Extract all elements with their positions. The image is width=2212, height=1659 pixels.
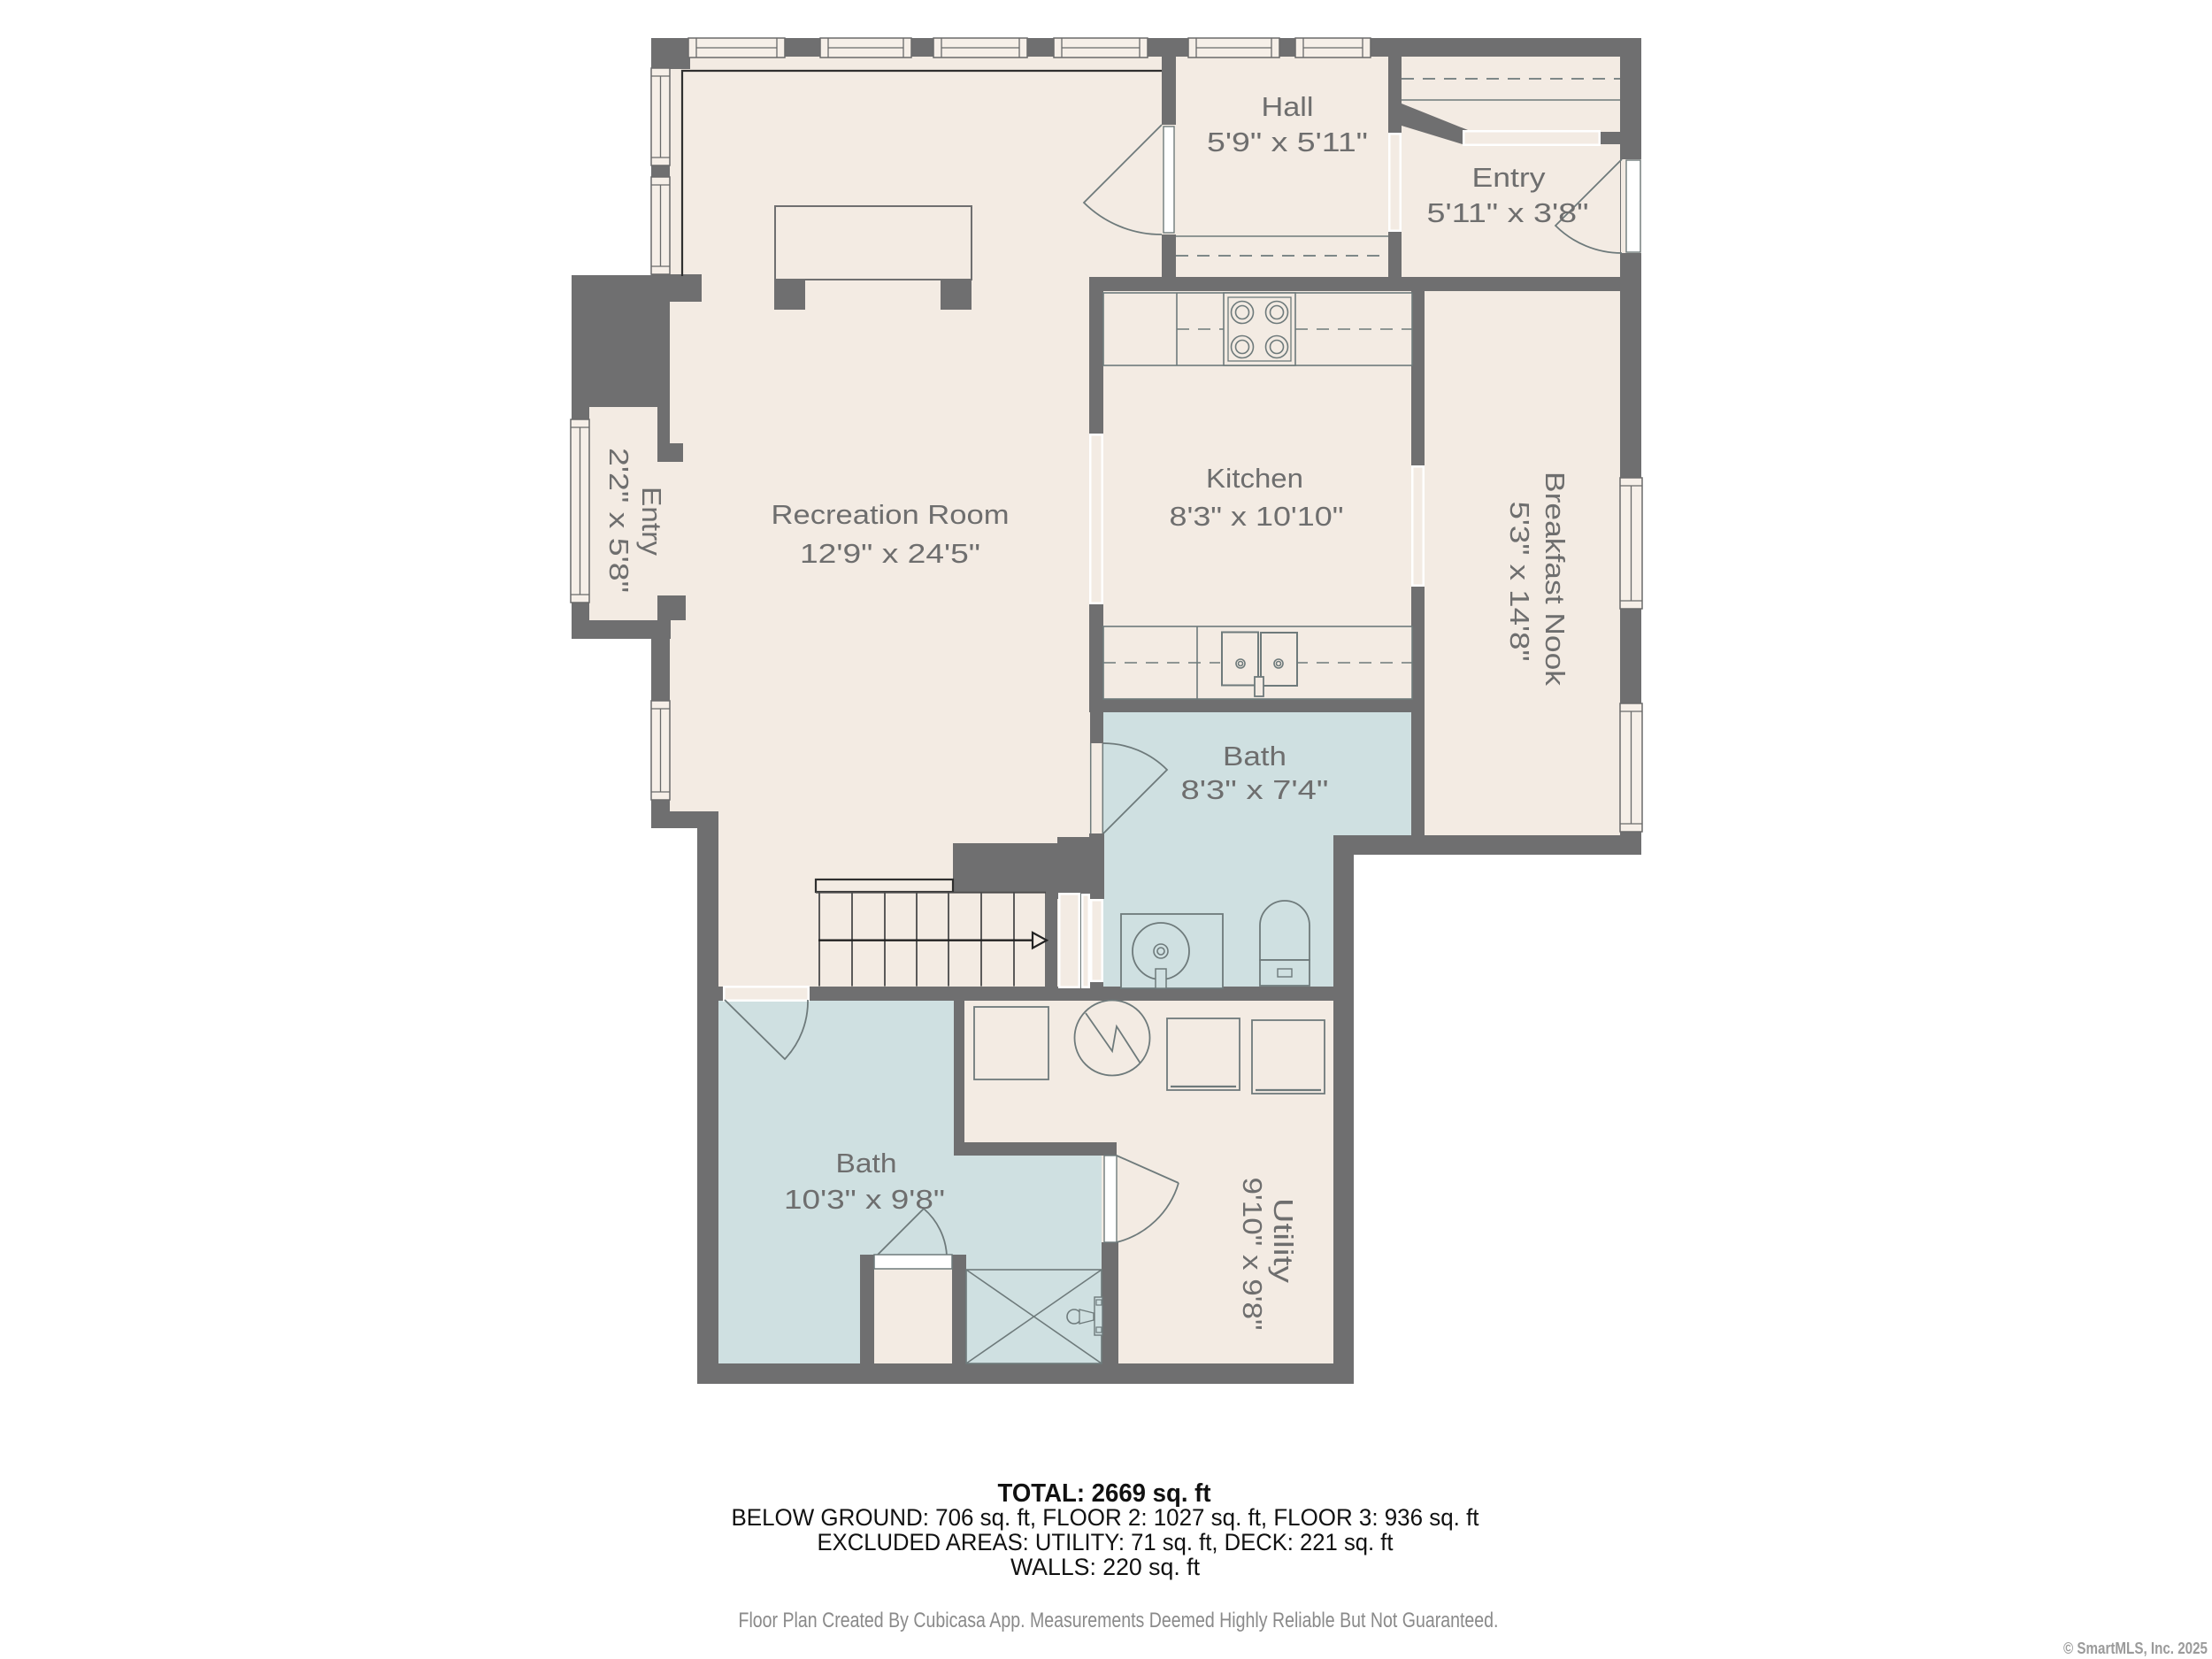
svg-text:8'3" x 10'10": 8'3" x 10'10": [1170, 501, 1344, 532]
svg-text:WALLS: 220 sq. ft: WALLS: 220 sq. ft: [1010, 1554, 1200, 1580]
svg-text:12'9" x 24'5": 12'9" x 24'5": [800, 538, 980, 569]
svg-text:2'2" x 5'8": 2'2" x 5'8": [603, 448, 634, 593]
svg-text:BELOW GROUND: 706 sq. ft, FLOO: BELOW GROUND: 706 sq. ft, FLOOR 2: 1027 …: [732, 1504, 1479, 1531]
svg-text:Entry: Entry: [636, 487, 667, 557]
svg-text:EXCLUDED AREAS: UTILITY: 71 sq: EXCLUDED AREAS: UTILITY: 71 sq. ft, DECK…: [818, 1529, 1394, 1555]
svg-text:Bath: Bath: [1223, 741, 1286, 772]
svg-text:Hall: Hall: [1262, 91, 1314, 122]
svg-text:Kitchen: Kitchen: [1206, 463, 1303, 494]
svg-text:5'11" x 3'8": 5'11" x 3'8": [1427, 197, 1589, 228]
svg-text:© SmartMLS, Inc. 2025: © SmartMLS, Inc. 2025: [2063, 1640, 2208, 1657]
svg-text:5'3" x 14'8": 5'3" x 14'8": [1504, 502, 1535, 662]
svg-text:Entry: Entry: [1472, 162, 1547, 193]
svg-text:Utility: Utility: [1268, 1198, 1299, 1284]
svg-text:5'9" x 5'11": 5'9" x 5'11": [1207, 127, 1368, 157]
svg-text:Recreation Room: Recreation Room: [772, 499, 1010, 530]
svg-text:Bath: Bath: [836, 1148, 897, 1179]
svg-text:8'3" x 7'4": 8'3" x 7'4": [1181, 774, 1329, 805]
svg-text:9'10" x 9'8": 9'10" x 9'8": [1237, 1178, 1268, 1331]
svg-text:10'3" x 9'8": 10'3" x 9'8": [784, 1184, 945, 1215]
svg-text:Breakfast Nook: Breakfast Nook: [1540, 472, 1571, 687]
svg-text:Floor Plan Created By Cubicasa: Floor Plan Created By Cubicasa App. Meas…: [739, 1609, 1499, 1632]
